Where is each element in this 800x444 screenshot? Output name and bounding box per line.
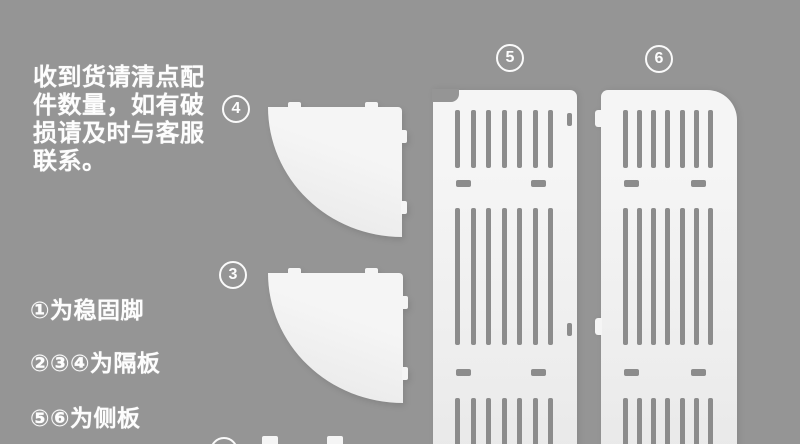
connector-slot [531, 369, 546, 376]
slat-band [623, 208, 713, 345]
vent-slot [502, 398, 507, 444]
slat-band [455, 208, 553, 345]
edge-tab [595, 318, 602, 335]
vent-slot [651, 398, 656, 444]
vent-slot [471, 208, 476, 345]
edge-slot [567, 323, 572, 336]
notice-line: 件数量，如有破 [33, 92, 223, 120]
slat-band [623, 110, 713, 168]
vent-slot [680, 208, 685, 345]
vent-slot [665, 110, 670, 168]
vent-slot [548, 398, 553, 444]
legend-item-sides: ⑤⑥为侧板 [30, 399, 140, 433]
vent-slot [665, 208, 670, 345]
vent-slot [651, 110, 656, 168]
vent-slot [502, 208, 507, 345]
vent-slot [548, 110, 553, 168]
legend-item-shelves: ②③④为隔板 [30, 344, 160, 378]
vent-slot [694, 110, 699, 168]
connector-slot [456, 180, 471, 187]
vent-slot [637, 208, 642, 345]
vent-slot [651, 208, 656, 345]
vent-slot [455, 110, 460, 168]
vent-slot [455, 398, 460, 444]
board-tab [288, 102, 301, 108]
connector-slot [624, 369, 639, 376]
vent-slot [517, 110, 522, 168]
connector-slot [691, 180, 706, 187]
corner-notch [432, 89, 459, 102]
vent-slot [517, 398, 522, 444]
vent-slot [471, 398, 476, 444]
connector-slot [624, 180, 639, 187]
vent-slot [533, 110, 538, 168]
part-3-label: 3 [219, 261, 247, 289]
vent-slot [471, 110, 476, 168]
shelf-board-2-tab [262, 436, 278, 444]
part-6-label: 6 [645, 45, 673, 73]
vent-slot [694, 398, 699, 444]
vent-slot [502, 110, 507, 168]
connector-slot [531, 180, 546, 187]
shelf-board-2-tab [327, 436, 343, 444]
part-2-label: 2 [210, 437, 238, 444]
vent-slot [623, 398, 628, 444]
part-5-label: 5 [496, 44, 524, 72]
legend-item-feet: ①为稳固脚 [30, 291, 144, 325]
shelf-board-3-body [268, 273, 403, 403]
board-tab [401, 201, 407, 214]
board-tab [401, 130, 407, 143]
slat-band [623, 398, 713, 444]
shelf-board-4-body [268, 107, 402, 237]
notice-line: 联系。 [33, 148, 223, 176]
board-tab [402, 367, 408, 380]
vent-slot [680, 398, 685, 444]
vent-slot [455, 208, 460, 345]
vent-slot [623, 110, 628, 168]
connector-slot [456, 369, 471, 376]
board-tab [402, 296, 408, 309]
vent-slot [708, 110, 713, 168]
vent-slot [680, 110, 685, 168]
shelf-board-4 [268, 107, 402, 237]
vent-slot [708, 398, 713, 444]
vent-slot [694, 208, 699, 345]
vent-slot [486, 110, 491, 168]
vent-slot [637, 398, 642, 444]
slat-band [455, 398, 553, 444]
side-panel-5 [433, 90, 577, 444]
vent-slot [548, 208, 553, 345]
slat-band [455, 110, 553, 168]
vent-slot [486, 208, 491, 345]
edge-tab [595, 110, 602, 127]
notice-line: 收到货请清点配 [33, 64, 223, 92]
part-4-label: 4 [222, 95, 250, 123]
vent-slot [637, 110, 642, 168]
vent-slot [486, 398, 491, 444]
vent-slot [708, 208, 713, 345]
shelf-board-3 [268, 273, 403, 403]
vent-slot [517, 208, 522, 345]
vent-slot [665, 398, 670, 444]
vent-slot [623, 208, 628, 345]
edge-slot [567, 113, 572, 126]
board-tab [288, 268, 301, 274]
board-tab [365, 268, 378, 274]
notice-line: 损请及时与客服 [33, 120, 223, 148]
vent-slot [533, 208, 538, 345]
connector-slot [691, 369, 706, 376]
board-tab [365, 102, 378, 108]
vent-slot [533, 398, 538, 444]
notice-text: 收到货请清点配 件数量，如有破 损请及时与客服 联系。 [33, 64, 223, 176]
instruction-image: 收到货请清点配 件数量，如有破 损请及时与客服 联系。 ①为稳固脚 ②③④为隔板… [0, 0, 800, 444]
side-panel-6 [601, 90, 737, 444]
